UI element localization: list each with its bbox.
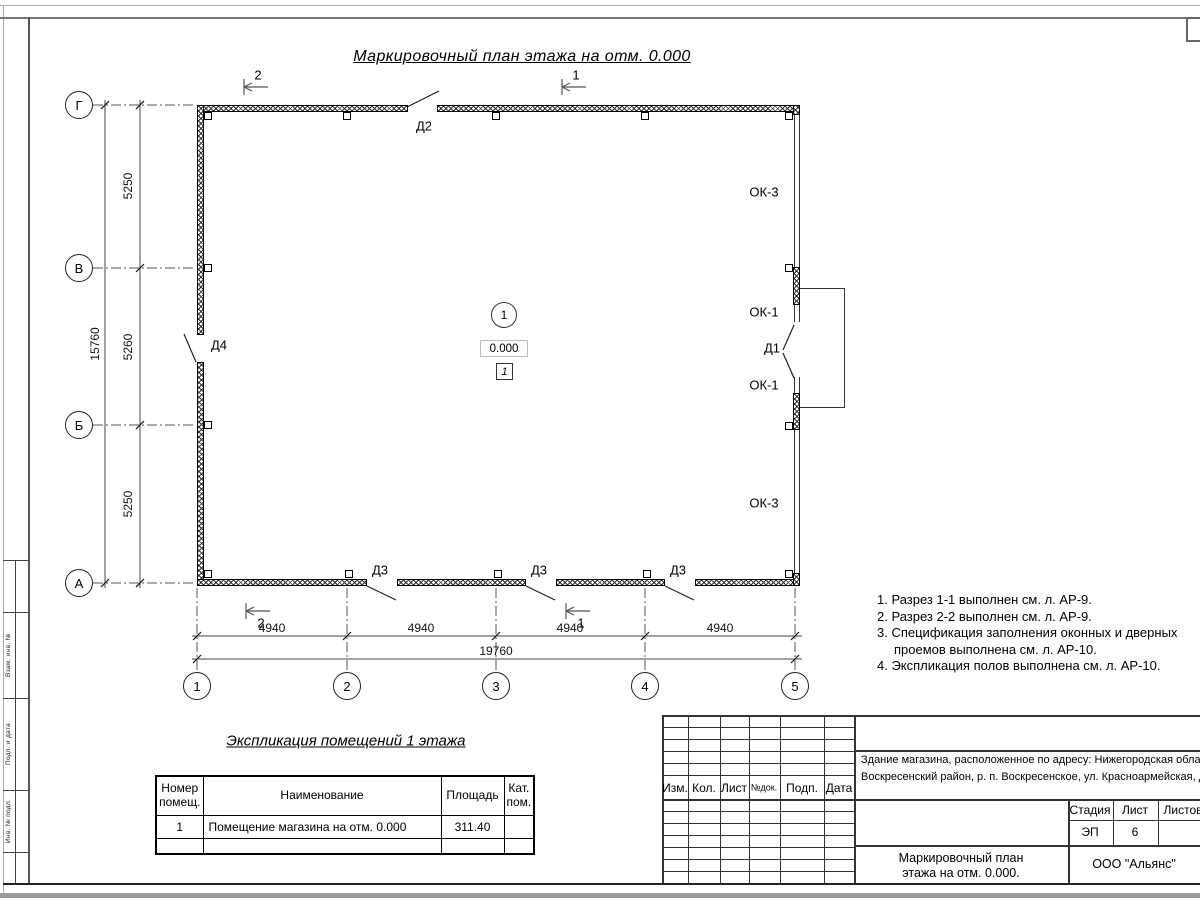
table-cell: 311.40 [441,816,504,839]
stage-label: Стадия [1070,803,1111,817]
room-elevation: 0.000 [480,340,528,357]
titleblock-line [1158,799,1159,845]
left-strip-divider [15,560,16,883]
section-arrowhead [244,87,252,91]
wall-bottom-1 [197,579,367,586]
table-cell [504,839,534,855]
table-cell: Помещение магазина на отм. 0.000 [203,816,441,839]
axis-bubble-left: Б [65,411,93,439]
titleblock-header-cell: Подп. [786,782,818,794]
window-label: ОК-1 [749,306,778,319]
titleblock-line [662,823,854,824]
axis-bubble-left: А [65,569,93,597]
titleblock-line [662,859,854,860]
table-header-cell: Наименование [203,776,441,816]
left-strip-line [3,698,29,699]
door-label: Д3 [670,564,686,577]
titleblock-line [662,727,854,728]
door-label: Д3 [531,564,547,577]
wall-left-lower [197,362,204,586]
wall-right-corner-top [793,105,800,115]
porch-outline [800,288,845,408]
section-arrowhead [246,607,254,611]
wall-right-pier-1 [793,267,800,305]
explication-title: Экспликация помещений 1 этажа [226,733,465,750]
note-line: 3. Спецификация заполнения оконных и две… [877,625,1199,642]
table-row: 1Помещение магазина на отм. 0.000311.40 [156,816,534,839]
axis-bubble-bottom: 4 [631,672,659,700]
pilaster [204,264,212,272]
frame-top [0,17,1200,19]
table-header-cell: Номер помещ. [156,776,203,816]
room-number-bubble: 1 [491,302,517,328]
dimension-text: 5250 [122,491,134,518]
wall-bottom-3 [556,579,665,586]
frame-left [28,17,30,885]
notes-list: 1. Разрез 1-1 выполнен см. л. АР-9.2. Ра… [877,592,1199,675]
door-label: Д1 [764,342,780,355]
doc-title-line2: этажа на отм. 0.000. [902,866,1019,880]
frame-left-label: Подп. и дата [6,723,13,765]
project-address-line1: Здание магазина, расположенное по адресу… [861,754,1200,766]
pilaster [494,570,502,578]
dimension-text: 4940 [707,622,734,634]
section-arrowhead [562,83,570,87]
table-cell [203,839,441,855]
drawing-title: Маркировочный план этажа на отм. 0.000 [353,48,690,66]
titleblock-line [854,845,1200,847]
axis-bubble-bottom: 5 [781,672,809,700]
pilaster [785,112,793,120]
axis-bubble-bottom: 1 [183,672,211,700]
pilaster [204,112,212,120]
titleblock-header-cell: Лист [721,782,747,794]
drawing-sheet: Маркировочный план этажа на отм. 0.000 [0,0,1200,900]
wall-top-right [437,105,795,112]
wall-right-corner-bottom [793,573,800,586]
wall-bottom-2 [397,579,526,586]
door-label: Д4 [211,339,227,352]
stage-value: ЭП [1081,825,1098,839]
window-label: ОК-3 [749,186,778,199]
dimension-total-text: 15760 [89,327,101,360]
door-label: Д2 [416,120,432,133]
wall-top-left [197,105,408,112]
sheets-label: Листов [1164,803,1200,817]
table-cell [441,839,504,855]
pilaster [204,570,212,578]
pilaster [204,421,212,429]
note-line: 4. Экспликация полов выполнена см. л. АР… [877,658,1199,675]
floor-type-marker: 1 [496,363,513,380]
section-arrowhead [246,611,254,615]
section-arrowhead [562,87,570,91]
titleblock-line [662,739,854,740]
table-header-cell: Площадь [441,776,504,816]
left-strip-line [3,852,29,853]
corner-stamp-box [1186,17,1200,42]
section-label: 2 [254,69,261,82]
section-arrowhead [566,611,574,615]
section-arrowhead [566,607,574,611]
titleblock-line [662,799,1200,801]
pilaster [343,112,351,120]
left-strip-line [3,790,29,791]
sheet-edge-top [0,5,1200,6]
pilaster [641,112,649,120]
window-ok3-upper [794,115,800,267]
table-row [156,839,534,855]
sheet-label: Лист [1122,803,1148,817]
axis-bubble-left: В [65,254,93,282]
frame-bottom [3,883,1200,885]
project-address-line2: Воскресенский район, р. п. Воскресенское… [861,771,1200,783]
doc-title-line1: Маркировочный план [899,851,1024,865]
titleblock-line [662,871,854,872]
frame-left-label: Инв. № подл. [6,799,13,843]
left-strip-line [3,612,29,613]
note-line: 2. Разрез 2-2 выполнен см. л. АР-9. [877,609,1199,626]
wall-left-upper [197,105,204,335]
pilaster [643,570,651,578]
pilaster [492,112,500,120]
pilaster [345,570,353,578]
explication-table: Номер помещ.НаименованиеПлощадьКат. пом.… [155,775,535,855]
window-ok3-lower [794,430,800,573]
titleblock-line [1068,820,1200,821]
dimension-total-text: 19760 [479,645,512,657]
axis-bubble-bottom: 2 [333,672,361,700]
frame-left-label: Взам. инв. № [6,633,13,677]
section-label: 2 [257,617,264,630]
section-label: 1 [572,69,579,82]
sheet-number: 6 [1132,825,1139,839]
titleblock-header-cell: Изм. [662,782,688,794]
dimension-text: 5250 [122,173,134,200]
table-cell [504,816,534,839]
titleblock-line [662,835,854,836]
titleblock-line [662,715,1200,717]
section-arrowhead [244,83,252,87]
note-line: 1. Разрез 1-1 выполнен см. л. АР-9. [877,592,1199,609]
axis-bubble-left: Г [65,91,93,119]
dimension-text: 5260 [122,334,134,361]
pilaster [785,264,793,272]
wall-right-pier-2 [793,393,800,430]
window-label: ОК-1 [749,379,778,392]
left-strip-line [3,560,29,561]
sheet-edge-bottom [0,893,1200,898]
window-label: ОК-3 [749,497,778,510]
titleblock-header-cell: №док. [751,784,777,793]
table-cell [156,839,203,855]
titleblock-line [662,811,854,812]
table-cell: 1 [156,816,203,839]
company-name: ООО "Альянс" [1092,857,1176,871]
dimension-text: 4940 [408,622,435,634]
titleblock-line [1113,799,1114,845]
titleblock-line [662,775,854,776]
axis-bubble-bottom: 3 [482,672,510,700]
wall-bottom-4 [695,579,800,586]
section-label: 1 [577,617,584,630]
note-line: проемов выполнена см. л. АР-10. [877,642,1199,659]
titleblock-line [662,751,854,752]
pilaster [785,422,793,430]
titleblock-line [662,763,854,764]
titleblock-line [662,847,854,848]
titleblock-header-cell: Дата [826,782,853,794]
titleblock-line [854,750,1200,752]
table-header-cell: Кат. пом. [504,776,534,816]
pilaster [785,570,793,578]
door-label: Д3 [372,564,388,577]
titleblock-header-cell: Кол. [692,782,716,794]
